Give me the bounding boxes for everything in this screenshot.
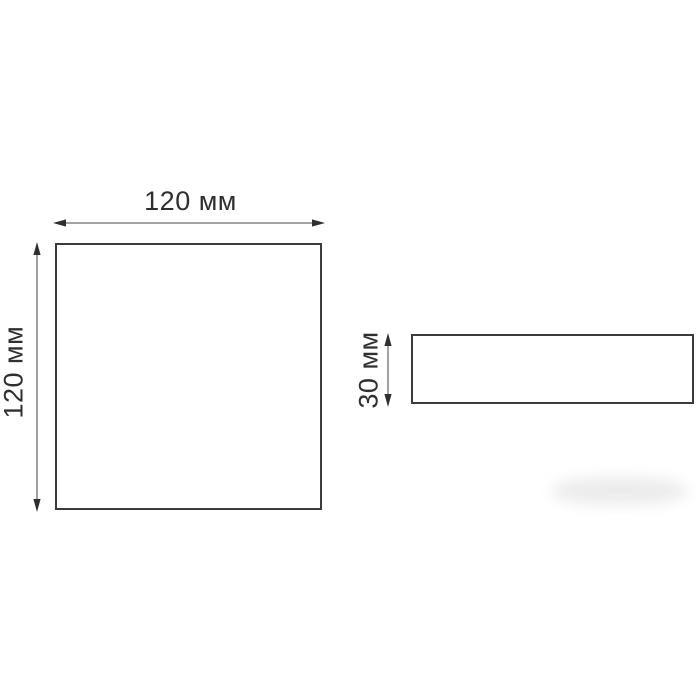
front-height-dimension-label: 120 мм <box>0 334 28 419</box>
side-thickness-dimension-label: 30 мм <box>355 328 383 413</box>
side-view-outline <box>411 334 694 404</box>
dimension-diagram: 120 мм 120 мм 30 мм <box>0 0 700 700</box>
height-dimension-arrow-icon <box>30 241 44 513</box>
front-view-outline <box>55 243 322 510</box>
watermark-smudge <box>552 477 687 505</box>
width-dimension-arrow-icon <box>52 216 326 230</box>
front-width-dimension-label: 120 мм <box>103 187 278 215</box>
